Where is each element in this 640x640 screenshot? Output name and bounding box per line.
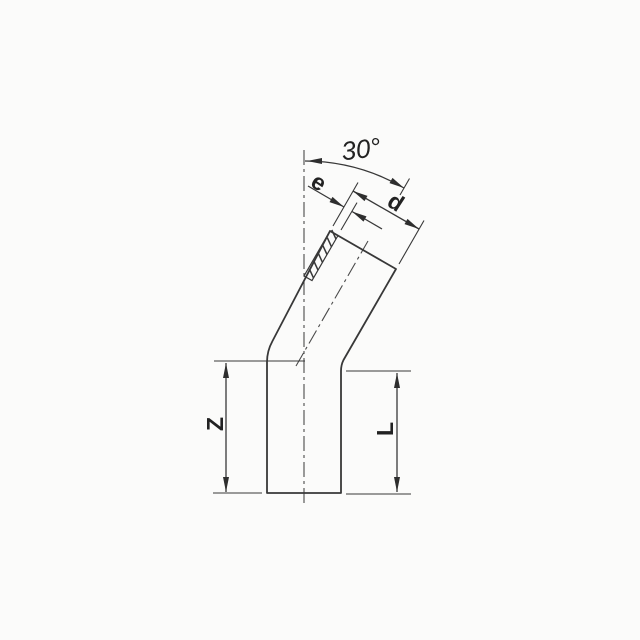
z-dimension: Z — [202, 361, 305, 493]
d-extension-right — [399, 221, 424, 265]
e-arrow-right — [352, 212, 367, 222]
hatch-area-edge — [304, 231, 338, 281]
angle-label: 30° — [340, 132, 383, 167]
pipe-body — [267, 231, 396, 493]
pipe-outline — [267, 231, 396, 493]
l-length-label: L — [372, 422, 398, 436]
hatch-stroke — [314, 261, 318, 270]
l-dimension: L — [346, 371, 411, 494]
d-arrow-left — [353, 191, 368, 201]
hatch-stroke — [323, 245, 327, 254]
z-arrow-bottom — [223, 477, 229, 492]
hatch-stroke — [309, 269, 313, 278]
diameter-dimension: d — [333, 183, 424, 265]
l-arrow-bottom — [394, 477, 400, 492]
pipe-bend-technical-drawing: 30° e d Z — [0, 0, 640, 640]
l-arrow-top — [394, 373, 400, 388]
diameter-label: d — [383, 187, 409, 216]
hatch-stroke — [327, 238, 331, 247]
wall-thickness-label: e — [307, 168, 332, 197]
e-arrow-left — [330, 197, 345, 207]
tilted-centerline — [296, 241, 368, 366]
wall-thickness-dimension: e — [307, 168, 382, 230]
d-arrow-right — [405, 219, 420, 229]
hatch-stroke — [318, 253, 322, 262]
drawing-canvas: 30° e d Z — [0, 0, 640, 640]
z-length-label: Z — [202, 417, 228, 431]
angle-arrow-left — [307, 158, 322, 164]
z-arrow-top — [223, 363, 229, 378]
